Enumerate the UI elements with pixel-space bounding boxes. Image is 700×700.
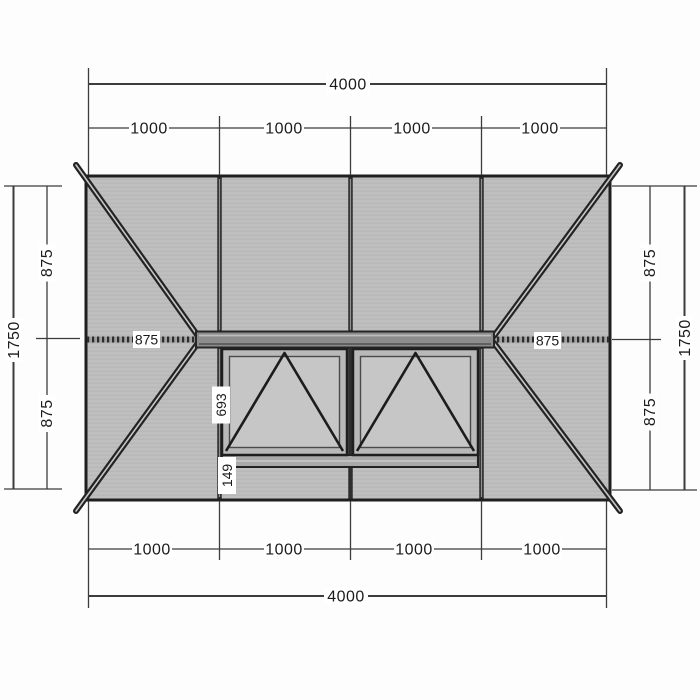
dim-label-vent-height: 693 (213, 393, 229, 417)
dim-label-vent-below: 149 (219, 464, 235, 488)
vent-glass (361, 357, 471, 448)
roof-lantern-plan-drawing: 4000 1000 1000 1000 1000 1000 1000 1000 … (0, 0, 700, 700)
dim-label-right-upper: 875 (642, 249, 659, 277)
dim-label-right-overall: 1750 (677, 319, 694, 357)
vent-window-left (222, 349, 347, 455)
dim-label-top-seg-3: 1000 (393, 121, 431, 138)
dim-label-jack-left: 875 (135, 331, 159, 347)
dim-label-top-seg-1: 1000 (130, 121, 168, 138)
dim-label-left-lower: 875 (39, 399, 56, 427)
dim-label-bottom-seg-1: 1000 (133, 542, 171, 559)
vent-window-right (353, 349, 478, 455)
dim-label-bottom-seg-4: 1000 (523, 542, 561, 559)
dim-label-bottom-overall: 4000 (327, 589, 365, 606)
dim-label-left-overall: 1750 (6, 321, 23, 359)
dim-label-bottom-seg-3: 1000 (395, 542, 433, 559)
dim-label-bottom-seg-2: 1000 (265, 542, 303, 559)
dim-label-left-upper: 875 (39, 249, 56, 277)
ridge-assembly (196, 332, 494, 348)
vent-glass (230, 357, 340, 448)
dim-label-top-seg-2: 1000 (265, 121, 303, 138)
dim-label-top-seg-4: 1000 (521, 121, 559, 138)
dim-label-jack-right: 875 (536, 332, 560, 348)
dim-label-right-lower: 875 (642, 398, 659, 426)
dim-label-top-overall: 4000 (329, 77, 367, 94)
ridge-bar (196, 332, 494, 348)
scanned-drawing-page: 4000 1000 1000 1000 1000 1000 1000 1000 … (0, 0, 700, 700)
sill-assembly (222, 455, 478, 467)
